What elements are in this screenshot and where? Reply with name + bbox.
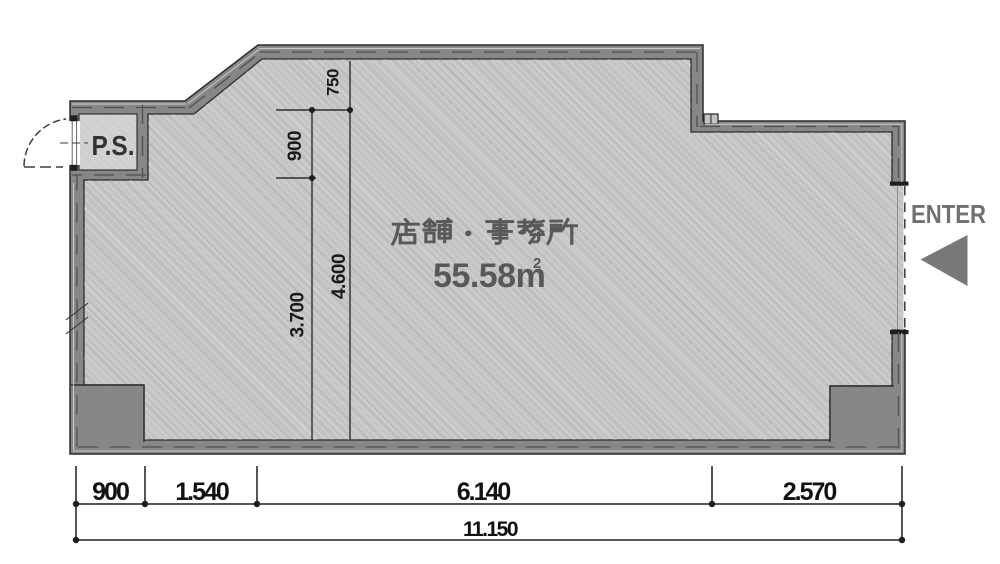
svg-text:2.570: 2.570 [783, 478, 837, 506]
svg-text:6.140: 6.140 [457, 478, 511, 506]
svg-text:3.700: 3.700 [288, 292, 309, 337]
svg-text:900: 900 [92, 478, 129, 506]
svg-text:11.150: 11.150 [463, 518, 518, 541]
svg-text:P.S.: P.S. [92, 130, 135, 161]
svg-text:900: 900 [285, 131, 306, 161]
svg-text:4.600: 4.600 [329, 254, 350, 299]
svg-text:ENTER: ENTER [911, 199, 986, 229]
svg-text:2: 2 [533, 255, 541, 272]
svg-text:750: 750 [323, 69, 342, 96]
svg-text:1.540: 1.540 [175, 478, 229, 506]
svg-text:55.58m: 55.58m [433, 257, 545, 295]
